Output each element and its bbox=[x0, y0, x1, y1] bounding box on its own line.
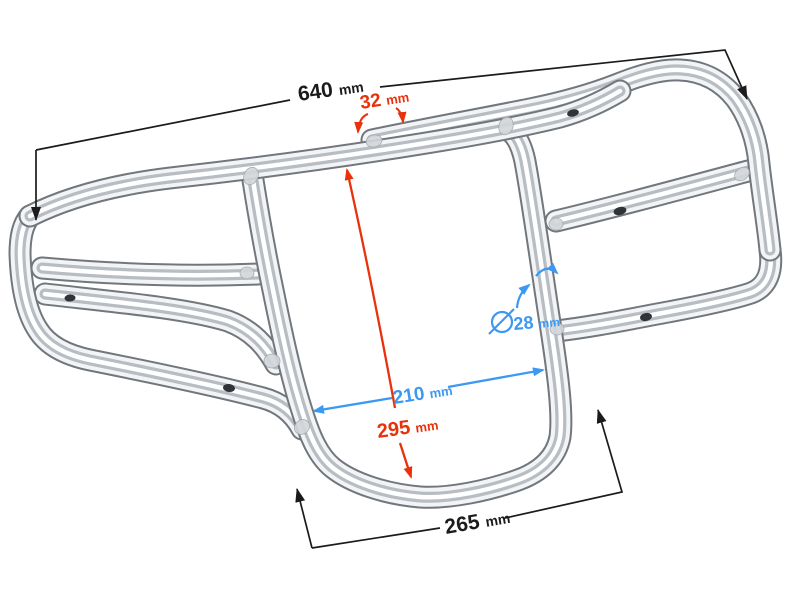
dim-label-640: 640mm bbox=[296, 74, 365, 106]
dim-arrow bbox=[358, 114, 368, 132]
dim-label-210: 210mm bbox=[391, 379, 453, 409]
dim-arrow bbox=[396, 108, 403, 122]
dim-line bbox=[448, 370, 543, 387]
right-lower-bar-tube bbox=[556, 250, 771, 331]
dim-line bbox=[400, 443, 411, 477]
dim-line bbox=[36, 100, 290, 150]
dim-inner-width: 210mm bbox=[314, 370, 543, 411]
dim-inner-height: 295mm bbox=[347, 170, 440, 477]
right-mid-bar-tube bbox=[556, 171, 748, 221]
dim-arrow bbox=[517, 285, 529, 308]
diameter-icon bbox=[489, 309, 514, 334]
dim-label-32: 32mm bbox=[358, 85, 410, 113]
dim-label-295: 295mm bbox=[376, 413, 440, 443]
dim-line bbox=[297, 489, 312, 548]
left-upper-bar-tube bbox=[42, 268, 258, 275]
rack-diagram: 640mm 32mm 295mm 210mm 28mm bbox=[0, 0, 800, 600]
product-image: 640mm 32mm 295mm 210mm 28mm bbox=[0, 0, 800, 600]
dim-line bbox=[314, 398, 392, 411]
dim-label-265: 265mm bbox=[443, 505, 512, 539]
dim-line bbox=[347, 170, 395, 408]
dim-line bbox=[312, 528, 440, 548]
